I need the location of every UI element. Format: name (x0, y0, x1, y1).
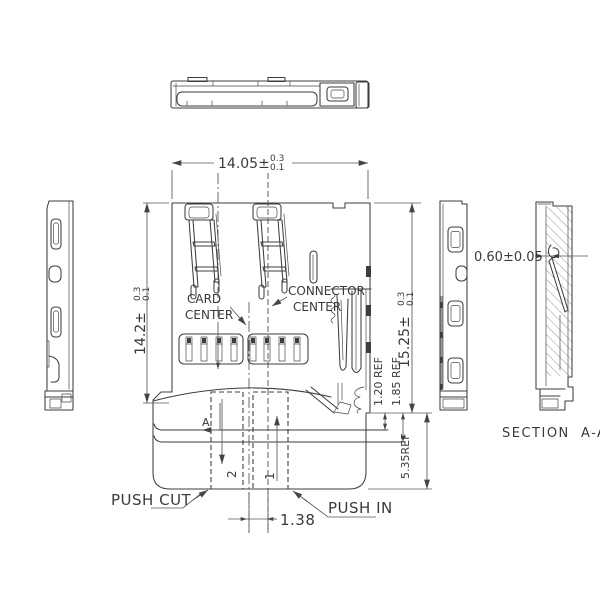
section-view (536, 202, 573, 410)
left-view-slot (51, 307, 61, 337)
dim-ref-535-text: 5.35REF (399, 434, 412, 479)
top-view-body-outline (171, 81, 368, 108)
dim-center-offset-text: 1.38 (280, 511, 315, 529)
guide-pin (310, 251, 317, 283)
contact-window-right (248, 334, 308, 364)
contact-spring-left (185, 204, 221, 299)
dim-left-height-text: 14.2± (133, 312, 149, 355)
push-cut-label: PUSH CUT (111, 491, 192, 509)
card-center-label-line1: CARD (187, 292, 221, 306)
section-title: SECTION A-A (502, 426, 600, 441)
dim-shell-thickness-text: 0.60±0.05 (474, 250, 543, 265)
right-side-view (440, 201, 467, 410)
card-center-label-line2: CENTER (185, 308, 233, 322)
front-view-lower-housing (153, 401, 366, 489)
front-view (153, 173, 404, 533)
connector-center-label-line2: CENTER (293, 300, 341, 314)
connector-drawing: 14.05± 0.3 0.1 14.2± 0.3 0.1 15.25± 0.3 … (0, 0, 600, 600)
connector-center-label-line1: CONNECTOR (288, 284, 365, 298)
right-view-slot (448, 227, 463, 252)
dim-top-width-text: 14.05± (218, 156, 270, 172)
front-view-detent-spring (354, 387, 364, 413)
top-view-end-cap (356, 82, 369, 108)
section-cut-marker: A (202, 416, 210, 429)
left-view-notch (49, 266, 61, 282)
top-view (171, 78, 369, 109)
callouts: CARD CENTER CONNECTOR CENTER A 2 1 PUSH … (111, 284, 600, 517)
dim-ref-120-text: 1.20 REF (372, 357, 385, 406)
right-view-slot (448, 301, 463, 326)
left-view-hook-cut (49, 356, 59, 382)
engineering-drawing-canvas: 14.05± 0.3 0.1 14.2± 0.3 0.1 15.25± 0.3 … (0, 0, 600, 600)
top-view-housing-bar (177, 92, 317, 106)
step-2-label: 2 (225, 470, 239, 478)
top-view-latch-window (327, 87, 348, 101)
contact-window-left (179, 334, 243, 364)
left-side-view (45, 201, 73, 410)
right-view-slot (448, 358, 463, 383)
dim-ref-185-text: 1.85 REF (390, 357, 403, 406)
right-view-tab (456, 266, 467, 281)
contact-spring-right (253, 204, 289, 299)
dim-right-height-tol-lower: 0.1 (406, 292, 416, 306)
left-view-slot (51, 219, 61, 249)
dim-left-height-tol-lower: 0.1 (142, 287, 152, 301)
dim-top-width-tol-lower: 0.1 (270, 163, 284, 173)
step-1-label: 1 (263, 472, 277, 480)
top-view-latch-block (320, 83, 354, 106)
push-in-label: PUSH IN (328, 499, 393, 517)
front-view-arc-edge (153, 388, 331, 401)
